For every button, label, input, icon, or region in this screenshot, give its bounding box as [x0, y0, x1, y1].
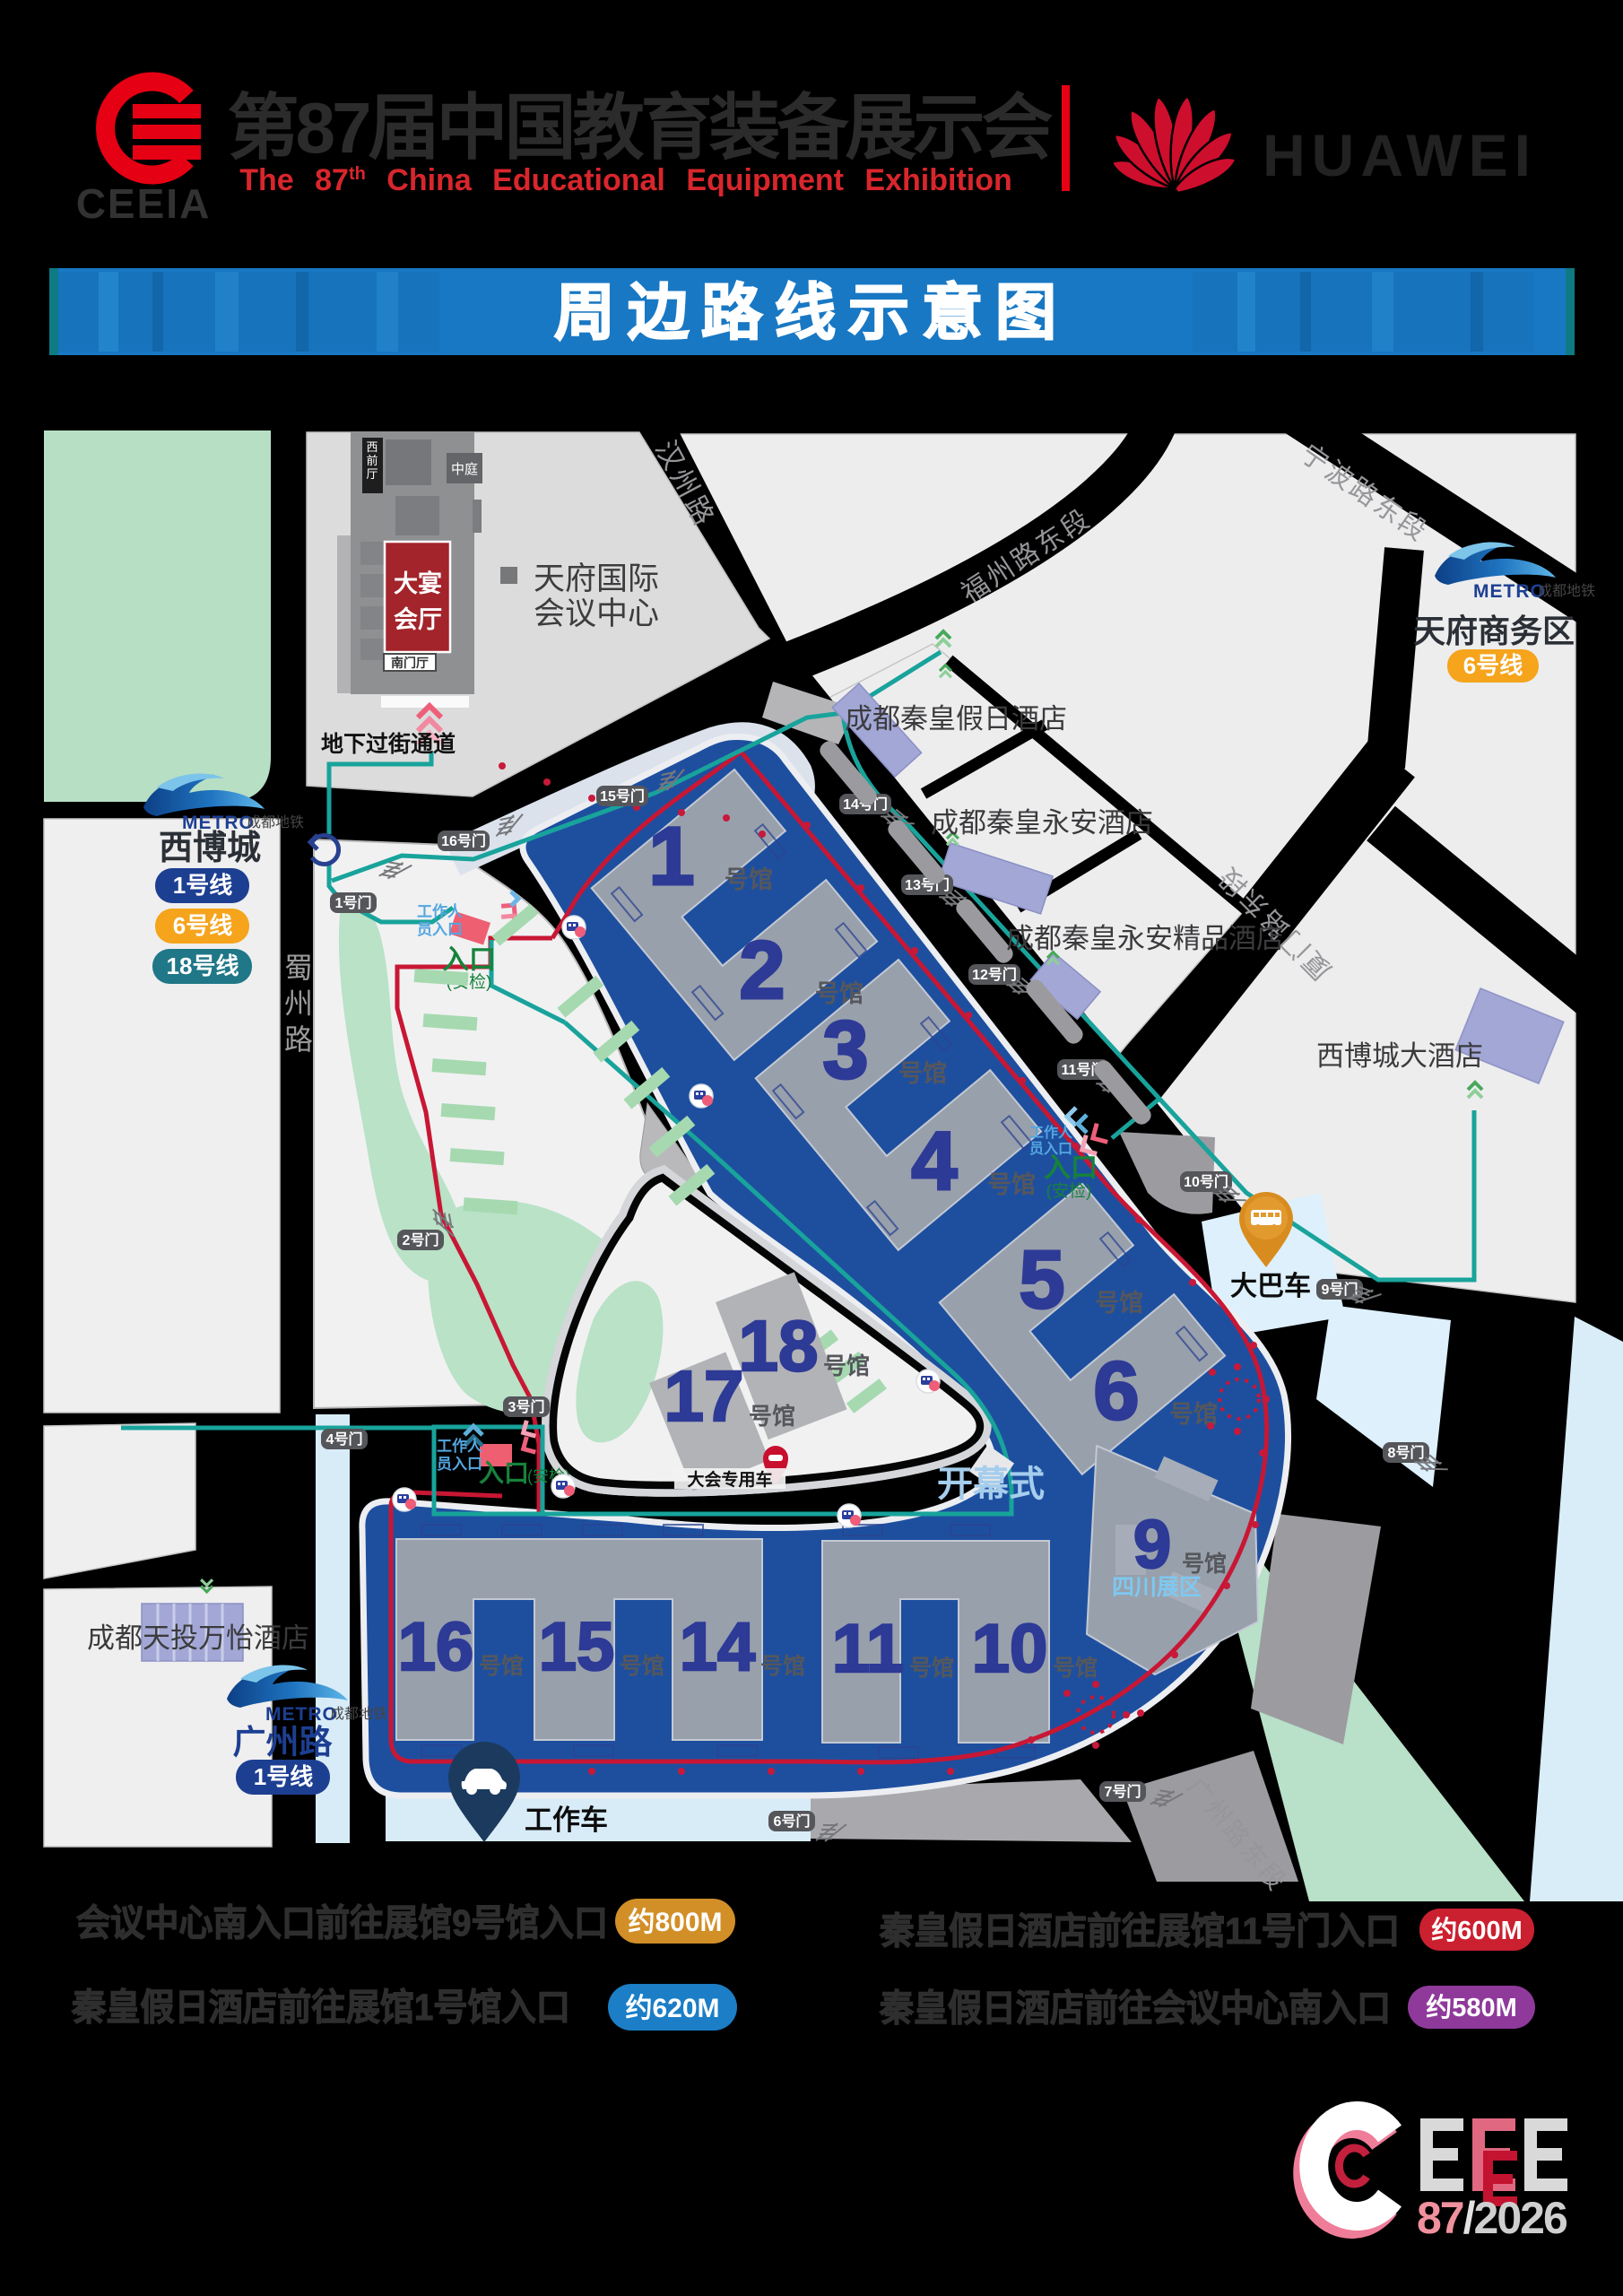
svg-text:号馆: 号馆 [1095, 1289, 1143, 1317]
svg-text:1号门: 1号门 [335, 894, 372, 911]
svg-text:号馆: 号馆 [898, 1059, 947, 1087]
svg-text:成都地铁: 成都地铁 [247, 814, 304, 831]
svg-text:15: 15 [539, 1609, 615, 1685]
svg-text:工作车: 工作车 [525, 1805, 608, 1836]
svg-text:16号门: 16号门 [441, 832, 486, 849]
svg-text:路: 路 [284, 1023, 313, 1056]
svg-text:秦皇假日酒店前往展馆1号馆入口: 秦皇假日酒店前往展馆1号馆入口 [71, 1987, 570, 2028]
svg-text:员入口: 员入口 [417, 921, 463, 938]
svg-text:工作人: 工作人 [417, 902, 464, 920]
svg-text:6号线: 6号线 [173, 912, 232, 939]
svg-text:中庭: 中庭 [451, 462, 478, 477]
svg-text:入口: 入口 [1044, 1153, 1098, 1183]
svg-text:员入口: 员入口 [437, 1456, 482, 1473]
svg-text:约800M: 约800M [628, 1908, 722, 1937]
svg-text:号馆: 号馆 [987, 1170, 1036, 1198]
svg-text:成都地铁: 成都地铁 [330, 1706, 387, 1722]
svg-text:成都地铁: 成都地铁 [1538, 583, 1595, 599]
svg-text:开幕式: 开幕式 [937, 1465, 1045, 1504]
svg-text:天府商务区: 天府商务区 [1413, 613, 1575, 649]
svg-text:10号门: 10号门 [1184, 1173, 1228, 1190]
svg-text:会议中心: 会议中心 [534, 596, 659, 631]
svg-text:3: 3 [822, 1004, 868, 1096]
svg-text:约580M: 约580M [1426, 1993, 1517, 2022]
svg-text:四川展区: 四川展区 [1112, 1575, 1202, 1600]
svg-text:西博城: 西博城 [159, 830, 261, 867]
svg-text:号馆: 号馆 [760, 1653, 805, 1679]
svg-text:大巴车: 大巴车 [1230, 1271, 1311, 1301]
svg-text:4号门: 4号门 [326, 1431, 363, 1448]
svg-text:秦皇假日酒店前往会议中心南入口: 秦皇假日酒店前往会议中心南入口 [879, 1987, 1391, 2029]
svg-text:18: 18 [739, 1306, 819, 1386]
svg-text:14: 14 [680, 1609, 756, 1685]
svg-text:成都天投万怡酒店: 成都天投万怡酒店 [87, 1622, 309, 1654]
svg-text:号馆: 号馆 [1053, 1655, 1098, 1681]
svg-text:第87届中国教育装备展示会: 第87届中国教育装备展示会 [228, 88, 1054, 168]
svg-text:12号门: 12号门 [972, 966, 1017, 983]
svg-text:号馆: 号馆 [749, 1403, 795, 1430]
svg-text:广州路: 广州路 [233, 1724, 334, 1761]
svg-text:8号门: 8号门 [1388, 1444, 1425, 1461]
svg-text:约600M: 约600M [1431, 1916, 1523, 1945]
svg-text:HUAWEI: HUAWEI [1263, 122, 1537, 188]
svg-text:工作人: 工作人 [437, 1437, 483, 1455]
svg-text:2: 2 [739, 925, 785, 1016]
svg-text:号馆: 号馆 [479, 1653, 524, 1679]
svg-text:成都秦皇永安酒店: 成都秦皇永安酒店 [931, 807, 1153, 839]
svg-text:约620M: 约620M [625, 1994, 719, 2023]
svg-text:2号门: 2号门 [403, 1231, 439, 1248]
svg-text:6号线: 6号线 [1463, 652, 1523, 679]
svg-text:号馆: 号馆 [823, 1352, 870, 1379]
svg-text:入口: 入口 [479, 1459, 529, 1487]
svg-text:(安检): (安检) [1046, 1181, 1092, 1201]
svg-text:1号线: 1号线 [173, 872, 232, 899]
svg-text:前: 前 [366, 454, 378, 467]
svg-text:6号门: 6号门 [774, 1813, 811, 1830]
svg-text:5: 5 [1019, 1234, 1064, 1326]
svg-text:CEEIA: CEEIA [76, 180, 212, 227]
svg-text:会厅: 会厅 [394, 606, 442, 633]
svg-text:西博城大酒店: 西博城大酒店 [1316, 1040, 1483, 1072]
svg-text:4: 4 [911, 1116, 957, 1207]
svg-text:州: 州 [284, 987, 313, 1020]
svg-text:大宴: 大宴 [394, 570, 442, 597]
svg-text:1: 1 [648, 811, 694, 902]
svg-text:9号门: 9号门 [1322, 1281, 1358, 1298]
svg-text:号馆: 号馆 [725, 865, 773, 893]
svg-text:大会专用车: 大会专用车 [687, 1469, 772, 1490]
svg-text:1号线: 1号线 [254, 1763, 313, 1790]
svg-text:7号门: 7号门 [1105, 1783, 1141, 1800]
svg-text:18号线: 18号线 [167, 952, 239, 979]
svg-text:南门厅: 南门厅 [391, 656, 429, 670]
svg-text:号馆: 号馆 [620, 1653, 664, 1679]
svg-text:17: 17 [664, 1356, 744, 1436]
svg-text:号馆: 号馆 [815, 979, 864, 1007]
svg-text:会议中心南入口前往展馆9号馆入口: 会议中心南入口前往展馆9号馆入口 [76, 1902, 608, 1944]
svg-text:METRO: METRO [1473, 581, 1546, 602]
svg-text:天府国际: 天府国际 [534, 561, 659, 596]
svg-text:16: 16 [398, 1609, 474, 1685]
svg-text:成都秦皇假日酒店: 成都秦皇假日酒店 [845, 703, 1067, 735]
svg-text:成都秦皇永安精品酒店: 成都秦皇永安精品酒店 [1006, 923, 1284, 954]
svg-text:蜀: 蜀 [284, 952, 313, 984]
svg-text:西: 西 [366, 440, 378, 454]
svg-text:10: 10 [972, 1611, 1048, 1687]
svg-text:地下过街通道: 地下过街通道 [321, 731, 456, 757]
svg-text:秦皇假日酒店前往展馆11号门入口: 秦皇假日酒店前往展馆11号门入口 [879, 1910, 1400, 1952]
svg-text:工作人: 工作人 [1029, 1124, 1073, 1141]
svg-text:87/2026: 87/2026 [1417, 2193, 1567, 2243]
svg-text:周边路线示意图: 周边路线示意图 [554, 279, 1069, 347]
svg-text:9: 9 [1133, 1507, 1171, 1583]
svg-text:11: 11 [832, 1611, 904, 1687]
svg-text:6: 6 [1093, 1345, 1139, 1437]
svg-text:METRO: METRO [265, 1704, 338, 1725]
svg-text:入口: 入口 [442, 945, 496, 975]
svg-text:号馆: 号馆 [909, 1655, 954, 1681]
svg-text:3号门: 3号门 [508, 1398, 545, 1415]
svg-text:厅: 厅 [366, 467, 378, 481]
svg-text:号馆: 号馆 [1182, 1551, 1227, 1577]
svg-text:15号门: 15号门 [600, 787, 645, 804]
